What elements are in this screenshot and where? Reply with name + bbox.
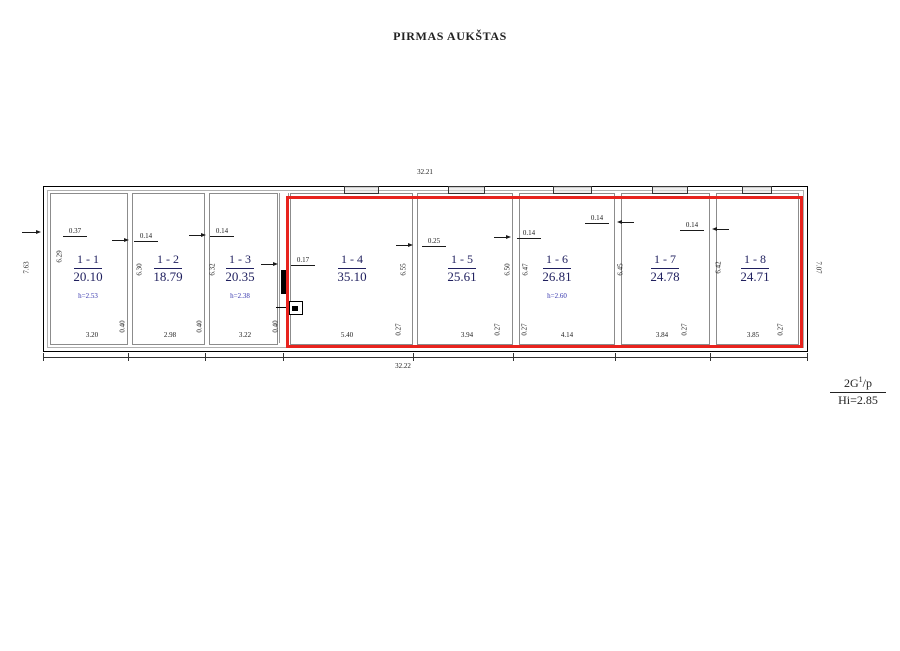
room-id: 1 - 1 bbox=[74, 252, 102, 269]
room-height-note: h=2.53 bbox=[46, 292, 130, 300]
dim-wall-offset: 0.40 bbox=[196, 309, 205, 345]
dim-room-depth: 6.29 bbox=[56, 239, 65, 275]
dim-arrow-line bbox=[261, 264, 273, 265]
dim-room-depth: 6.55 bbox=[400, 252, 409, 288]
dim-tick bbox=[710, 353, 711, 361]
highlighted-apartment-boundary bbox=[286, 196, 803, 348]
window-icon bbox=[652, 186, 688, 194]
dim-tick bbox=[807, 353, 808, 361]
bottom-dimension-line bbox=[43, 357, 808, 358]
dim-arrow-line bbox=[22, 232, 36, 233]
dim-wall-offset: 0.40 bbox=[272, 309, 281, 345]
window-icon bbox=[344, 186, 379, 194]
room-height-note: h=2.38 bbox=[198, 292, 282, 300]
dim-tick bbox=[205, 353, 206, 361]
dim-room-depth: 6.50 bbox=[504, 252, 513, 288]
dim-room-depth: 6.30 bbox=[136, 252, 145, 288]
dim-wall: 0.14 bbox=[210, 227, 234, 237]
dim-room-depth: 6.42 bbox=[715, 250, 724, 286]
dim-tick bbox=[43, 353, 44, 361]
floor-height-label: Hi=2.85 bbox=[830, 393, 886, 408]
window-icon bbox=[553, 186, 592, 194]
dim-room-width: 3.20 bbox=[67, 331, 117, 340]
dim-wall-offset: 0.27 bbox=[681, 312, 690, 348]
dim-wall: 0.14 bbox=[134, 232, 158, 242]
dim-tick bbox=[283, 353, 284, 361]
dim-wall: 0.14 bbox=[585, 214, 609, 224]
dim-arrow-icon bbox=[408, 243, 413, 247]
dim-arrow-line bbox=[717, 229, 729, 230]
dim-arrow-line bbox=[622, 222, 634, 223]
dim-room-width: 3.84 bbox=[637, 331, 687, 340]
dim-arrow-icon bbox=[273, 262, 278, 266]
dim-arrow-line bbox=[396, 245, 408, 246]
dim-room-width: 5.40 bbox=[322, 331, 372, 340]
floor-type-annotation: 2G1/p Hi=2.85 bbox=[830, 375, 886, 408]
dim-room-depth: 6.45 bbox=[617, 252, 626, 288]
dim-arrow-icon bbox=[124, 238, 129, 242]
dim-tick bbox=[128, 353, 129, 361]
dim-overall-bottom: 32.22 bbox=[378, 362, 428, 371]
dim-room-width: 4.14 bbox=[542, 331, 592, 340]
dim-wall-offset: 0.27 bbox=[494, 312, 503, 348]
dim-room-width: 3.94 bbox=[442, 331, 492, 340]
drawing-title: PIRMAS AUKŠTAS bbox=[0, 29, 900, 44]
dim-room-width: 3.85 bbox=[728, 331, 778, 340]
dim-arrow-icon bbox=[201, 233, 206, 237]
window-icon bbox=[742, 186, 772, 194]
window-icon bbox=[448, 186, 485, 194]
dim-arrow-line bbox=[112, 240, 124, 241]
dim-wall-offset: 0.27 bbox=[777, 312, 786, 348]
dim-wall: 0.17 bbox=[291, 256, 315, 266]
dim-room-width: 3.22 bbox=[220, 331, 270, 340]
dim-overall-right: 7.07 bbox=[814, 250, 823, 286]
room-id: 1 - 2 bbox=[154, 252, 182, 269]
dim-arrow-line bbox=[494, 237, 506, 238]
dim-overall-left: 7.63 bbox=[23, 250, 32, 286]
dim-overall-top: 32.21 bbox=[400, 168, 450, 177]
floor-type-label: 2G1/p bbox=[830, 375, 886, 393]
dim-wall: 0.14 bbox=[680, 221, 704, 231]
dim-tick bbox=[513, 353, 514, 361]
dim-wall-offset: 0.40 bbox=[119, 309, 128, 345]
dim-tick bbox=[615, 353, 616, 361]
dim-room-depth: 6.47 bbox=[522, 252, 531, 288]
dim-room-width: 2.98 bbox=[145, 331, 195, 340]
floor-plan-canvas: PIRMAS AUKŠTAS 1 - 1 20.10 h=2.53 1 - 2 … bbox=[0, 0, 900, 651]
dim-tick bbox=[413, 353, 414, 361]
dim-arrow-icon bbox=[36, 230, 41, 234]
dim-wall: 0.14 bbox=[517, 229, 541, 239]
dim-room-depth: 6.32 bbox=[209, 252, 218, 288]
room-id: 1 - 3 bbox=[226, 252, 254, 269]
dim-wall: 0.37 bbox=[63, 227, 87, 237]
electric-panel-icon-fill bbox=[292, 306, 298, 311]
dim-wall-offset: 0.27 bbox=[395, 312, 404, 348]
dim-wall-offset: 0.27 bbox=[521, 312, 530, 348]
dim-wall: 0.25 bbox=[422, 237, 446, 247]
dim-arrow-icon bbox=[506, 235, 511, 239]
dim-arrow-line bbox=[189, 235, 201, 236]
